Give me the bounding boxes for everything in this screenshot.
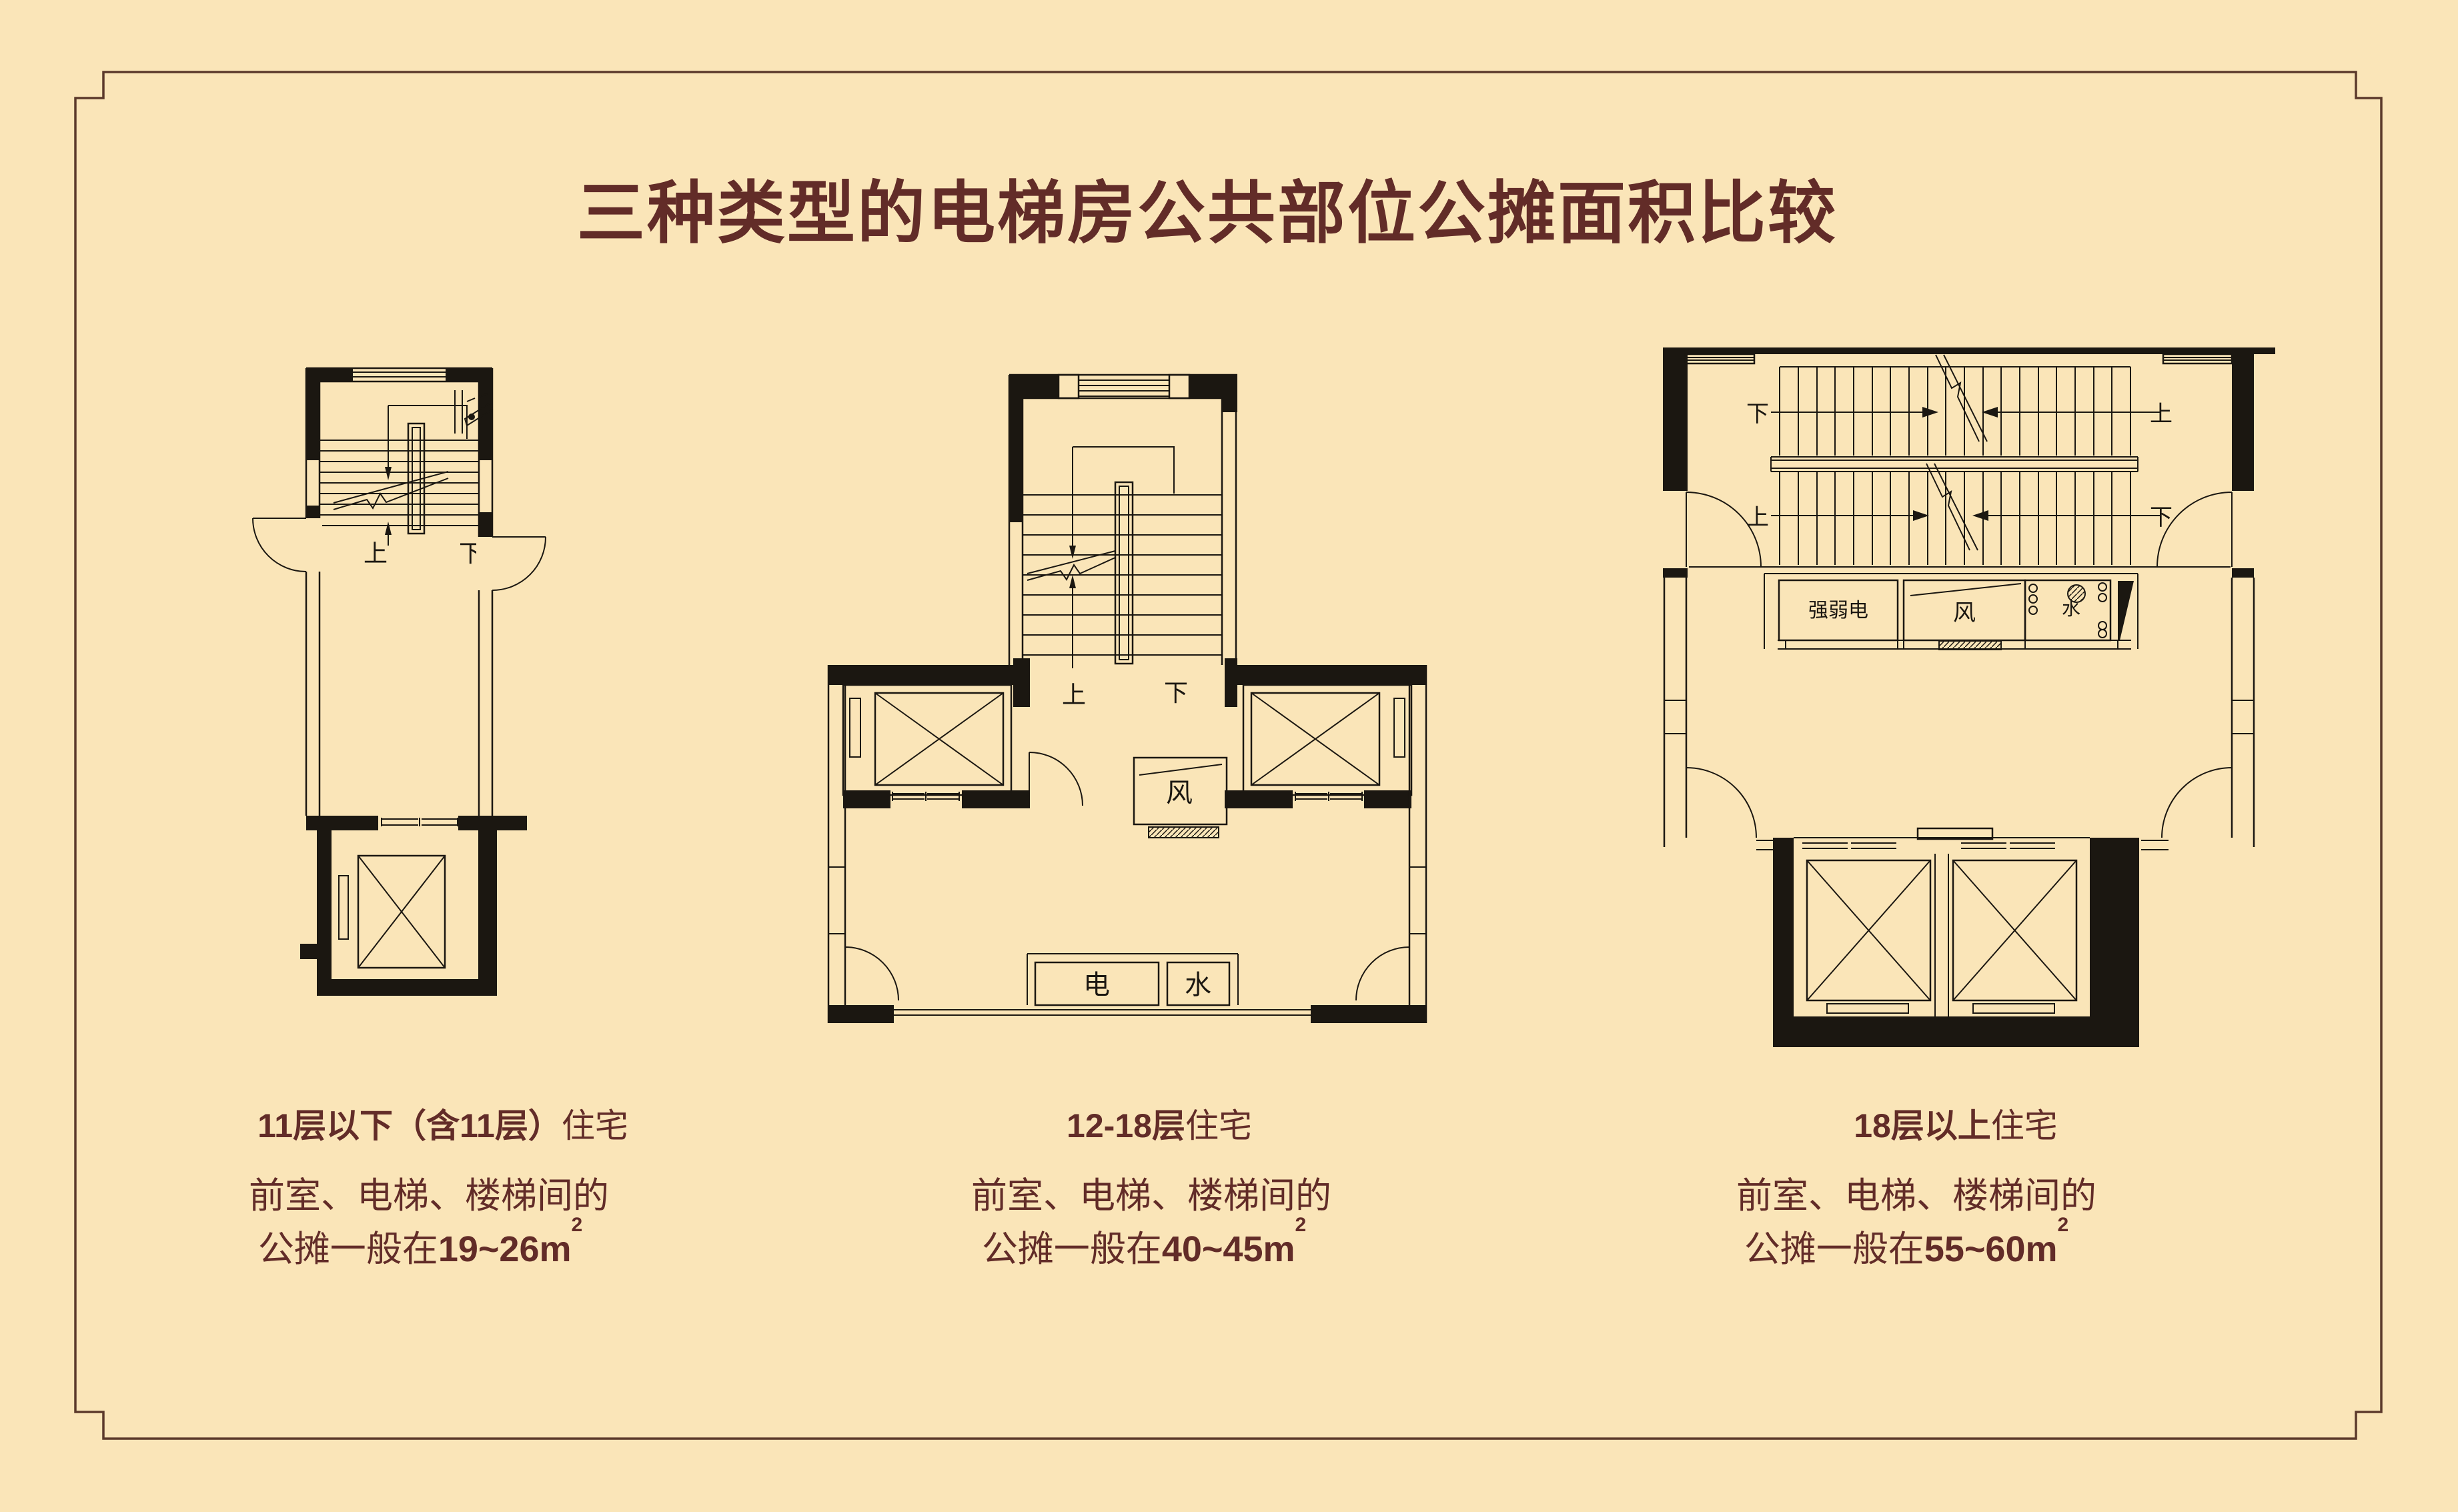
caption-value: 40~45m	[1162, 1229, 1295, 1269]
plan-caption-line2-low-rise: 公摊一般在19~26m2	[258, 1219, 582, 1272]
page-title: 三种类型的电梯房公共部位公摊面积比较	[577, 159, 1838, 257]
stair-down-label: 下	[1746, 402, 1769, 427]
caption-prefix: 公摊一般在	[258, 1229, 438, 1269]
mid-rise-wings	[828, 665, 1426, 808]
plan-caption-line1-high-rise: 前室、电梯、楼梯间的	[1736, 1166, 2096, 1219]
plan-heading-high-rise: 18层以上住宅	[1854, 1099, 2058, 1147]
heading-regular: 住宅	[562, 1107, 628, 1145]
heading-bold: 12-18层	[1067, 1107, 1185, 1145]
floor-plan-mid-rise: 上 下	[820, 360, 1434, 1034]
stair-up-label: 上	[364, 540, 388, 567]
caption-value: 19~26m	[438, 1229, 572, 1269]
caption-superscript: 2	[1295, 1214, 1307, 1236]
high-rise-scissor-stairs: 下 上 上 下	[1662, 355, 2255, 568]
air-shaft-label: 风	[1166, 778, 1193, 808]
low-rise-walls	[306, 368, 527, 830]
plan-caption-line2-high-rise: 公摊一般在55~60m2	[1744, 1219, 2068, 1272]
plan-caption-line1-mid-rise: 前室、电梯、楼梯间的	[971, 1166, 1331, 1219]
high-rise-hall-and-elevators	[1686, 768, 2232, 1047]
strong-weak-electric-label: 强弱电	[1808, 600, 1868, 622]
floor-plan-high-rise: 下 上 上 下 强弱电 风 水	[1634, 327, 2301, 1100]
caption-value: 55~60m	[1924, 1229, 2058, 1269]
electric-closet-label: 电	[1083, 970, 1110, 1000]
floor-plan-low-rise: 上 下	[227, 360, 560, 1020]
low-rise-doors	[253, 518, 546, 590]
plan-caption-line1-low-rise: 前室、电梯、楼梯间的	[249, 1166, 609, 1219]
plan-caption-line2-mid-rise: 公摊一般在40~45m2	[982, 1219, 1306, 1272]
plan-heading-mid-rise: 12-18层住宅	[1067, 1099, 1252, 1147]
mid-rise-hall: 风 电 水	[828, 665, 1426, 1023]
caption-superscript: 2	[2058, 1214, 2069, 1236]
low-rise-elevator	[300, 830, 497, 996]
water-closet-label: 水	[1185, 970, 1211, 1000]
heading-regular: 住宅	[1185, 1107, 1252, 1145]
stair-up-label: 上	[2150, 402, 2173, 427]
heading-regular: 住宅	[1991, 1107, 2058, 1145]
air-shaft-label: 风	[1953, 600, 1976, 626]
caption-prefix: 公摊一般在	[1744, 1229, 1924, 1269]
low-rise-stairs: 上 下	[320, 390, 492, 567]
high-rise-utility-row: 强弱电 风 水	[1764, 574, 2138, 650]
plan-heading-low-rise: 11层以下（含11层）住宅	[257, 1099, 628, 1147]
infographic-page: 三种类型的电梯房公共部位公摊面积比较	[0, 0, 2458, 1512]
stair-up-label: 上	[1062, 681, 1086, 708]
heading-bold: 11层以下（含11层）	[257, 1107, 562, 1145]
water-pump-label: 水	[2062, 598, 2080, 619]
caption-superscript: 2	[572, 1214, 583, 1236]
mid-rise-stair-tower: 上 下	[1009, 375, 1237, 708]
stair-down-label: 下	[1164, 679, 1188, 706]
caption-prefix: 公摊一般在	[982, 1229, 1162, 1269]
heading-bold: 18层以上	[1854, 1107, 1991, 1145]
